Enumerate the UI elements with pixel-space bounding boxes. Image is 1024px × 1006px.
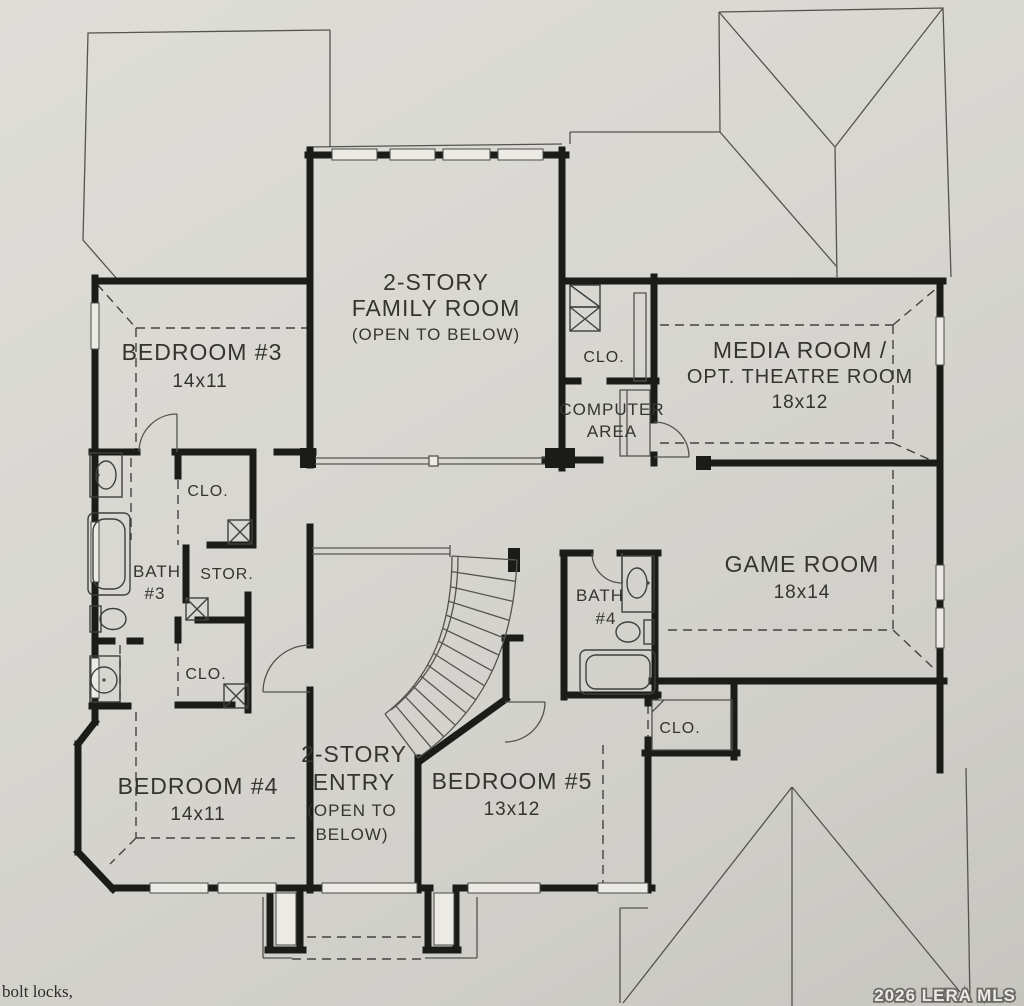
closet-bath4-label: CLO. — [659, 720, 700, 737]
stair-treads — [385, 556, 517, 758]
family-window — [390, 149, 435, 160]
staircase — [385, 556, 517, 758]
bath3-label-2: #3 — [145, 584, 166, 603]
bedroom3-dims: 14x11 — [172, 371, 227, 392]
media-room-label-2: OPT. THEATRE ROOM — [687, 366, 913, 388]
bedroom3-ceiling-dash — [97, 284, 308, 450]
bedroom3-window — [91, 303, 99, 349]
game-room-label: GAME ROOM — [725, 551, 880, 577]
closet-lower-left-label: CLO. — [185, 666, 226, 683]
bath4-label-1: BATH — [576, 586, 624, 605]
family-room-label-1: 2-STORY — [383, 269, 489, 295]
bath4-door — [592, 553, 622, 583]
bath4-tub — [580, 650, 655, 694]
closet-rod — [634, 293, 646, 381]
closet-upper-left-label: CLO. — [187, 483, 228, 500]
bedroom5-door — [505, 702, 545, 742]
bedroom3-label: BEDROOM #3 — [122, 339, 283, 365]
family-room-label-3: (OPEN TO BELOW) — [352, 325, 520, 344]
cut-off-caption: bolt locks, — [2, 982, 73, 1001]
bedroom5-dims: 13x12 — [484, 799, 541, 820]
mls-watermark: 2026 LERA MLS — [874, 986, 1016, 1005]
stair-tread — [452, 556, 517, 560]
media-window — [936, 317, 944, 365]
entry-label-3: (OPEN TO — [307, 801, 397, 820]
entry-bay-walls — [268, 888, 652, 950]
bath4-label-2: #4 — [596, 609, 617, 628]
entry-label-1: 2-STORY — [301, 741, 407, 767]
computer-area-label-2: AREA — [587, 422, 637, 441]
stair-tread — [421, 676, 466, 713]
family-room-label-2: FAMILY ROOM — [352, 295, 521, 321]
entry-label-4: BELOW) — [315, 825, 388, 844]
entry-window — [322, 883, 417, 893]
roof-bottom-right — [623, 787, 960, 1006]
media-room-label-1: MEDIA ROOM / — [713, 337, 887, 363]
roof-top-left — [83, 30, 330, 279]
bedroom5-label: BEDROOM #5 — [432, 768, 593, 794]
wall-stub-game — [696, 456, 711, 470]
family-window — [332, 149, 377, 160]
bedroom5-window — [598, 883, 648, 893]
floor-plan-svg: 2-STORY FAMILY ROOM (OPEN TO BELOW) BEDR… — [0, 0, 1024, 1006]
bath4-toilet — [616, 620, 654, 644]
storage-label: STOR. — [200, 566, 254, 583]
railings — [312, 456, 545, 557]
media-room-dims: 18x12 — [772, 392, 829, 413]
entry-bay-window — [276, 893, 296, 945]
stair-tread — [439, 641, 493, 671]
bath4-vanity — [622, 556, 654, 612]
bedroom4-window — [150, 883, 208, 893]
stair-tread — [452, 572, 516, 582]
bath3-label-1: BATH — [133, 562, 181, 581]
entry-label-2: ENTRY — [313, 769, 396, 795]
media-room-door — [654, 422, 689, 457]
entry-bay-window — [434, 893, 454, 945]
walls — [78, 150, 944, 950]
stair-tread — [428, 665, 476, 700]
computer-area-label-1: COMPUTER — [559, 400, 664, 419]
roof-top-right — [719, 8, 951, 277]
entry-overlook-railing — [312, 545, 450, 557]
stair-tread — [413, 686, 455, 725]
bedroom4-label: BEDROOM #4 — [118, 773, 279, 799]
stair-tread — [405, 696, 444, 737]
bedroom4-door — [263, 645, 310, 692]
bedroom4-dims: 14x11 — [170, 804, 225, 825]
bedroom3-door — [139, 414, 177, 452]
porch-dash — [292, 937, 425, 959]
stair-tread — [449, 601, 510, 620]
floor-plan-image: 2-STORY FAMILY ROOM (OPEN TO BELOW) BEDR… — [0, 0, 1024, 1006]
closet-hall-label: CLO. — [583, 349, 624, 366]
stair-tread — [434, 653, 485, 685]
game-room-dims: 18x14 — [774, 582, 831, 603]
game-window — [936, 608, 944, 648]
game-window — [936, 565, 944, 600]
family-window — [498, 149, 543, 160]
bath3-window — [91, 522, 99, 582]
stair-tread — [451, 587, 513, 602]
bedroom4-window — [218, 883, 276, 893]
bedroom5-window — [468, 883, 540, 893]
railing-post-left — [300, 448, 316, 468]
family-window — [443, 149, 490, 160]
